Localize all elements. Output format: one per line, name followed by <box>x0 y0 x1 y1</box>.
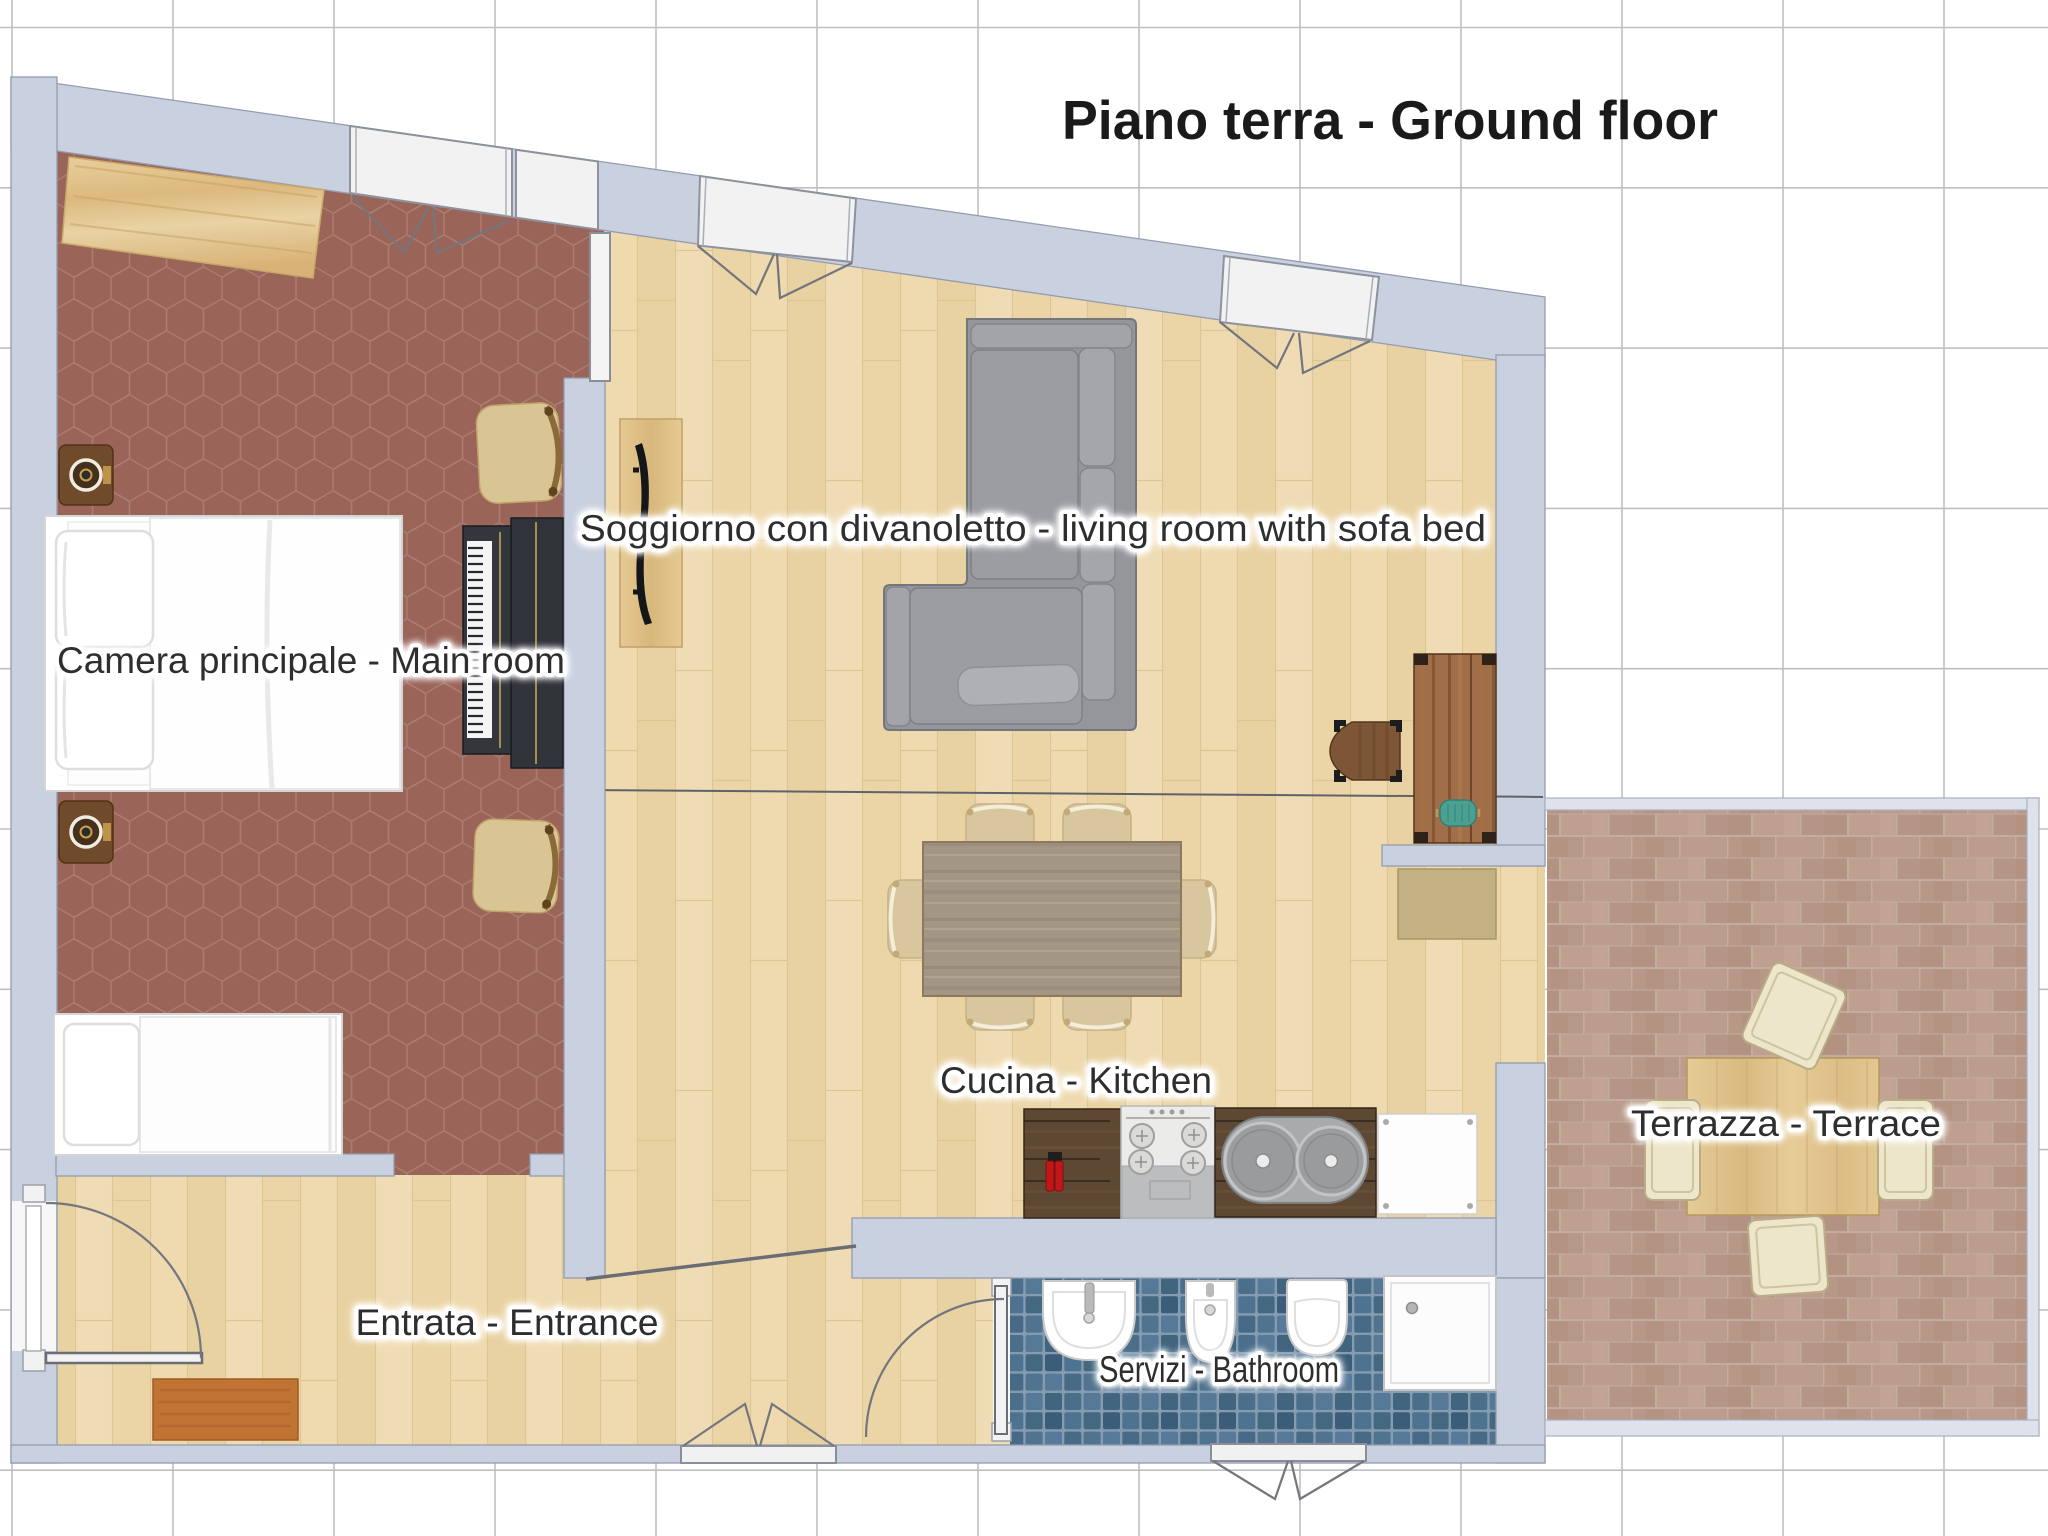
svg-text:Servizi - Bathroom: Servizi - Bathroom <box>1099 1349 1339 1390</box>
svg-text:Piano terra - Ground floor: Piano terra - Ground floor <box>1062 89 1718 151</box>
svg-text:Entrata - Entrance: Entrata - Entrance <box>356 1302 659 1343</box>
svg-text:Soggiorno con divanoletto - li: Soggiorno con divanoletto - living room … <box>580 508 1486 549</box>
svg-text:Camera principale - Main room: Camera principale - Main room <box>57 640 565 681</box>
svg-text:Terrazza - Terrace: Terrazza - Terrace <box>1631 1103 1941 1144</box>
svg-text:Cucina - Kitchen: Cucina - Kitchen <box>940 1060 1212 1101</box>
